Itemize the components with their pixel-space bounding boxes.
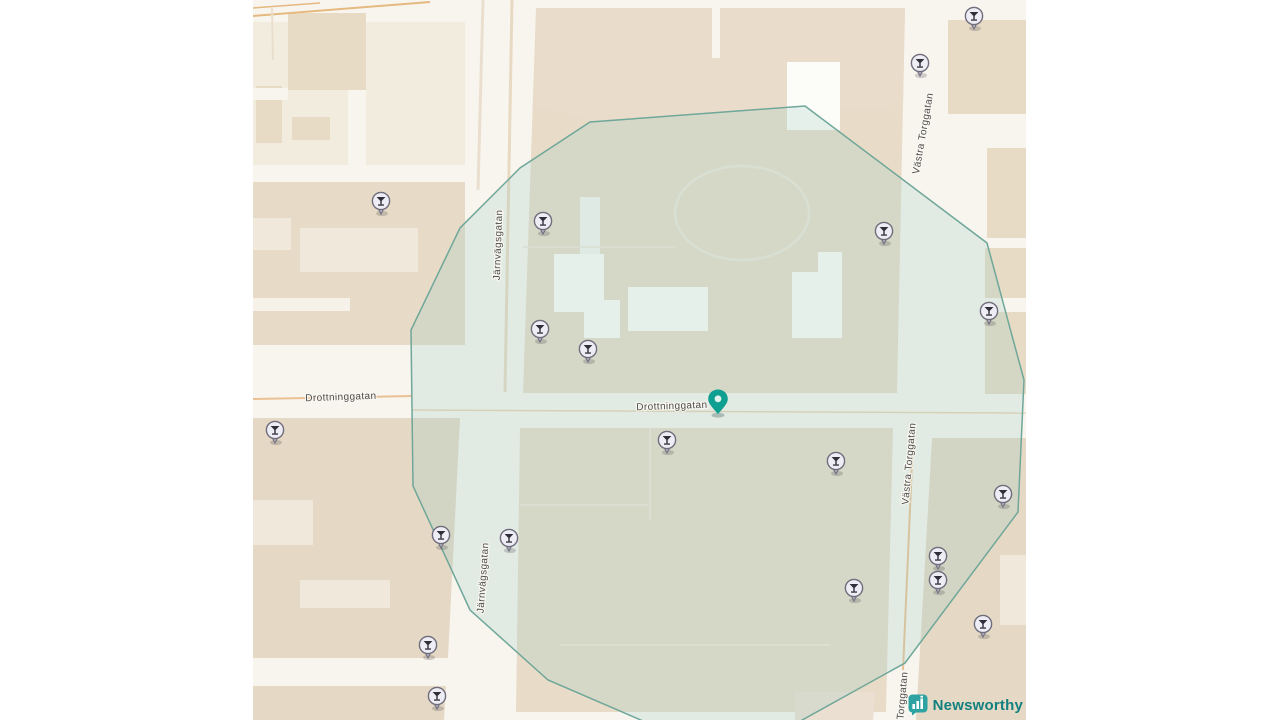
newsworthy-label: Newsworthy bbox=[933, 697, 1023, 714]
map-viewport[interactable]: DrottninggatanDrottninggatanJärnvägsgata… bbox=[253, 0, 1026, 720]
newsworthy-logo-icon bbox=[908, 694, 928, 716]
map-canvas[interactable]: DrottninggatanDrottninggatanJärnvägsgata… bbox=[253, 0, 1026, 720]
newsworthy-watermark[interactable]: Newsworthy bbox=[908, 694, 1023, 716]
right-margin bbox=[1026, 0, 1280, 720]
left-margin bbox=[0, 0, 253, 720]
screenshot-root: DrottninggatanDrottninggatanJärnvägsgata… bbox=[0, 0, 1280, 720]
